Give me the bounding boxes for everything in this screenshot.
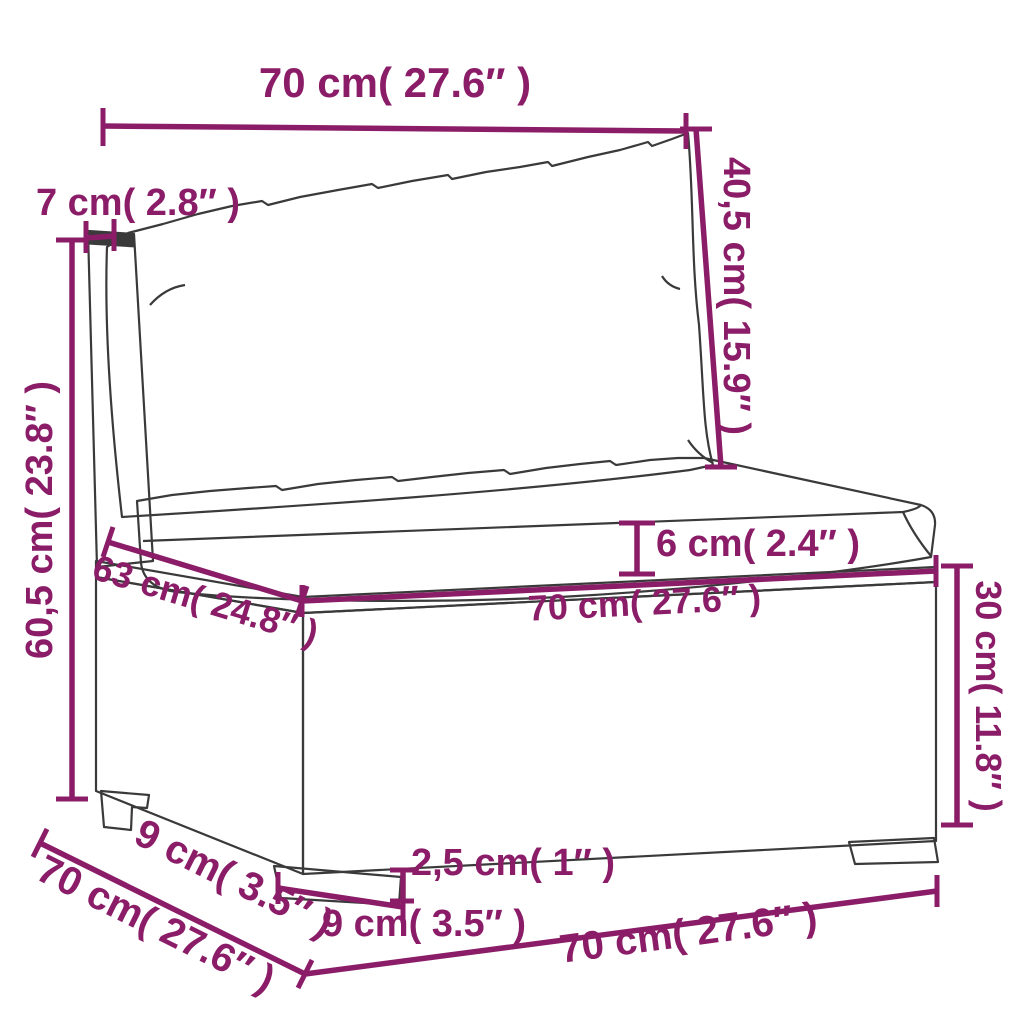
dim-seat-depth: 63 cm( 24.8″ ) [88, 527, 323, 654]
product-dimension-diagram: 70 cm( 27.6″ ) 7 cm( 2.8″ ) 40,5 cm( 15.… [0, 0, 1024, 1024]
dimension-annotations: 70 cm( 27.6″ ) 7 cm( 2.8″ ) 40,5 cm( 15.… [19, 59, 1009, 1002]
dim-cushion-thickness-label: 6 cm( 2.4″ ) [656, 523, 860, 565]
dim-base-height-label: 30 cm( 11.8″ ) [968, 580, 1009, 811]
dimension-diagram-page: 70 cm( 27.6″ ) 7 cm( 2.8″ ) 40,5 cm( 15.… [0, 0, 1024, 1024]
dim-back-width-label: 70 cm( 27.6″ ) [259, 59, 531, 106]
dim-foot-height-label: 2,5 cm( 1″ ) [411, 842, 615, 884]
sofa-illustration [88, 133, 938, 905]
dim-post-depth-label: 7 cm( 2.8″ ) [36, 182, 240, 224]
dim-total-height: 60,5 cm( 23.8″ ) [19, 240, 88, 799]
back-cushion-fold-left [150, 285, 185, 305]
dim-bottom-width-label: 70 cm( 27.6″ ) [557, 894, 820, 971]
dim-base-height: 30 cm( 11.8″ ) [941, 566, 1009, 825]
dim-cushion-thickness: 6 cm( 2.4″ ) [619, 523, 860, 574]
dim-back-cushion-height-label: 40,5 cm( 15.9″ ) [715, 157, 757, 435]
base-right-face [303, 582, 936, 874]
back-cushion-fold-right [662, 276, 680, 289]
dim-total-height-label: 60,5 cm( 23.8″ ) [19, 381, 61, 659]
dim-depth-diagonal: 9 cm( 3.5″ ) 70 cm( 27.6″ ) [30, 811, 340, 1002]
dim-foot-height: 2,5 cm( 1″ ) [390, 842, 615, 901]
dim-back-width: 70 cm( 27.6″ ) [103, 59, 686, 149]
dim-foot-width-label: 9 cm( 3.5″ ) [322, 903, 526, 945]
seat-cushion-right-edge [903, 512, 931, 556]
